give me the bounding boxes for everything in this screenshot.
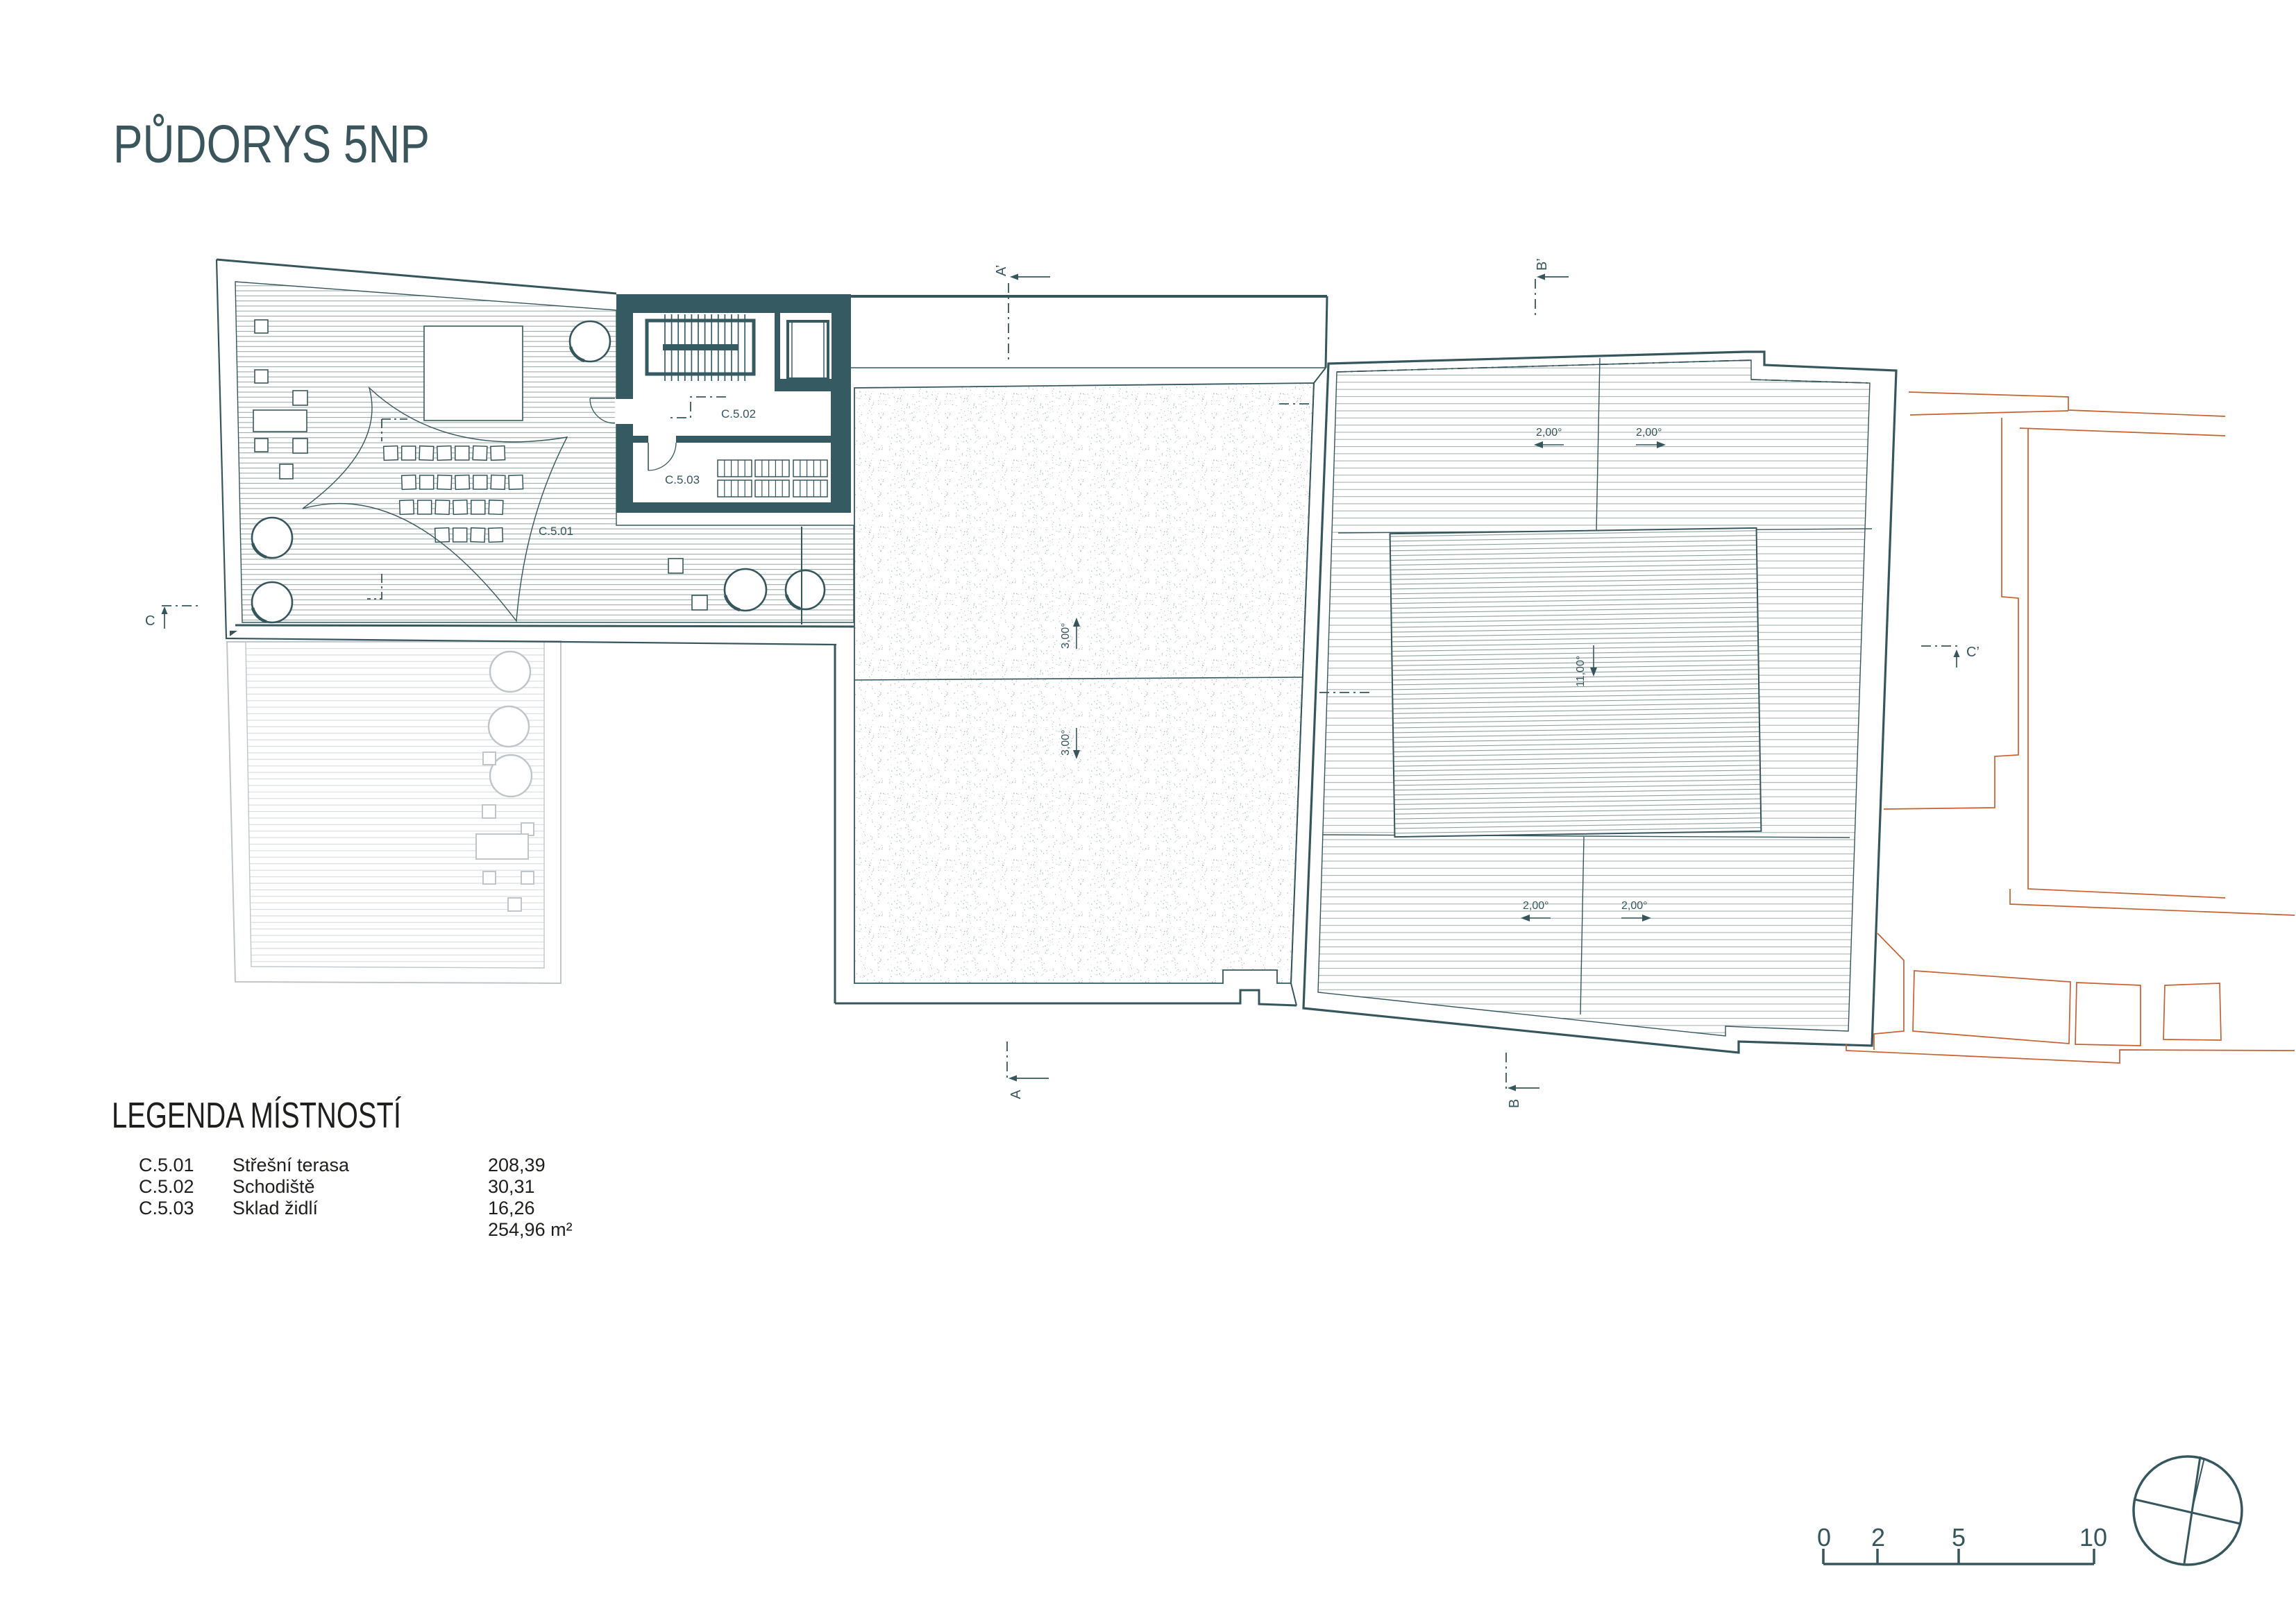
svg-text:C.5.01: C.5.01	[539, 525, 573, 538]
svg-text:LEGENDA MÍSTNOSTÍ: LEGENDA MÍSTNOSTÍ	[112, 1096, 401, 1136]
svg-text:B: B	[1507, 1099, 1522, 1108]
svg-text:208,39: 208,39	[488, 1155, 546, 1175]
svg-text:C’: C’	[1966, 645, 1980, 660]
svg-text:3,00°: 3,00°	[1060, 622, 1072, 649]
svg-text:10: 10	[2079, 1523, 2107, 1552]
svg-text:C.5.01: C.5.01	[139, 1155, 194, 1175]
svg-text:A: A	[1008, 1089, 1024, 1099]
svg-text:C: C	[145, 613, 155, 629]
svg-text:Střešní terasa: Střešní terasa	[233, 1155, 350, 1175]
svg-text:3,00°: 3,00°	[1060, 729, 1072, 756]
svg-text:2,00°: 2,00°	[1523, 900, 1549, 912]
svg-text:2,00°: 2,00°	[1621, 900, 1648, 912]
svg-text:C.5.02: C.5.02	[721, 407, 756, 420]
svg-text:5: 5	[1952, 1523, 1966, 1552]
svg-text:2: 2	[1871, 1523, 1885, 1552]
svg-text:30,31: 30,31	[488, 1176, 535, 1197]
svg-text:254,96 m²: 254,96 m²	[488, 1219, 573, 1240]
svg-text:Schodiště: Schodiště	[233, 1176, 315, 1197]
svg-text:PŮDORYS 5NP: PŮDORYS 5NP	[113, 112, 430, 174]
svg-text:16,26: 16,26	[488, 1198, 535, 1218]
svg-text:C.5.02: C.5.02	[139, 1176, 194, 1197]
svg-text:C.5.03: C.5.03	[139, 1198, 194, 1218]
svg-text:2,00°: 2,00°	[1536, 427, 1562, 439]
svg-text:11,00°: 11,00°	[1575, 656, 1587, 687]
svg-text:0: 0	[1817, 1523, 1831, 1552]
svg-text:C.5.03: C.5.03	[665, 473, 700, 486]
svg-text:A’: A’	[994, 265, 1009, 276]
svg-text:Sklad židlí: Sklad židlí	[233, 1198, 319, 1218]
svg-text:2,00°: 2,00°	[1636, 427, 1662, 439]
svg-text:B’: B’	[1535, 258, 1550, 271]
